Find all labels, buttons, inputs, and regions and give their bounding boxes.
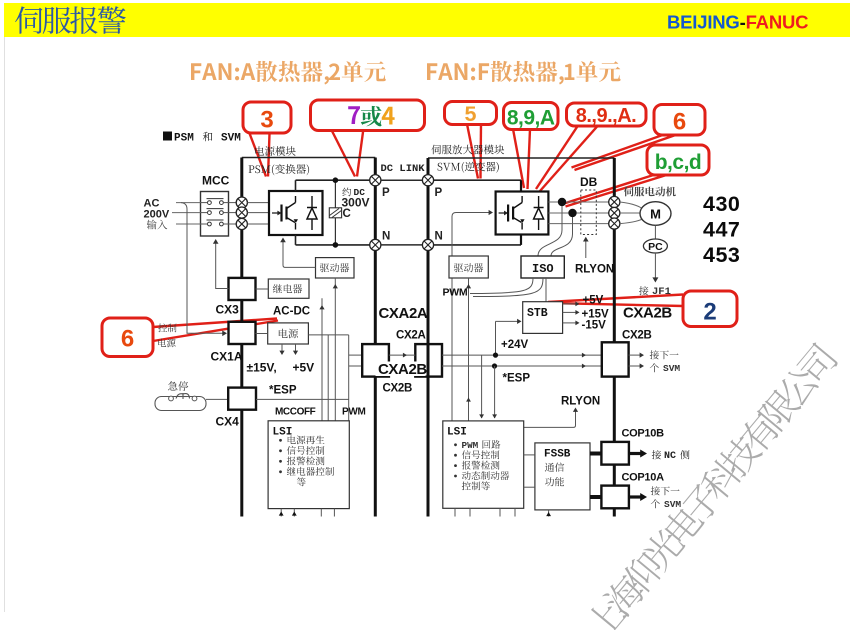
svg-text:±15V,: ±15V,: [247, 361, 277, 375]
svg-text:CX4: CX4: [216, 415, 240, 429]
svg-text:SVM: SVM: [663, 363, 680, 374]
svg-text:3: 3: [260, 107, 273, 134]
svg-text:DB: DB: [580, 175, 598, 189]
svg-text:FSSB: FSSB: [544, 449, 571, 461]
svg-text:CX2B: CX2B: [383, 383, 412, 395]
svg-text:*ESP: *ESP: [503, 373, 531, 385]
svg-text:447: 447: [703, 218, 740, 242]
svg-text:+5V: +5V: [583, 295, 604, 307]
svg-text:6: 6: [673, 109, 686, 136]
svg-text:2: 2: [703, 299, 716, 326]
svg-text:PWM: PWM: [342, 407, 366, 418]
svg-text:DC LINK: DC LINK: [381, 163, 426, 175]
svg-text:PSM: PSM: [174, 133, 194, 145]
svg-text:PWM: PWM: [462, 440, 479, 451]
svg-text:+24V: +24V: [501, 339, 529, 351]
svg-text:300V: 300V: [342, 196, 370, 210]
svg-text:CXA2A: CXA2A: [379, 305, 428, 322]
svg-text:PWM: PWM: [443, 287, 468, 299]
svg-text:430: 430: [703, 192, 740, 216]
svg-text:COP10B: COP10B: [622, 428, 665, 440]
svg-text:MCC: MCC: [202, 174, 230, 188]
svg-text:RLYON: RLYON: [561, 396, 600, 408]
svg-text:JF1: JF1: [652, 286, 671, 298]
svg-text:-15V: -15V: [582, 320, 607, 332]
svg-text:C: C: [343, 208, 351, 220]
svg-text:CX2A: CX2A: [396, 330, 425, 342]
svg-text:LSI: LSI: [447, 427, 467, 439]
svg-text:*ESP: *ESP: [269, 385, 297, 397]
svg-text:P: P: [382, 187, 390, 199]
svg-text:M: M: [650, 207, 661, 222]
svg-text:8.,9.,A.: 8.,9.,A.: [576, 105, 636, 127]
svg-text:PC: PC: [648, 241, 663, 253]
svg-text:SVM: SVM: [664, 499, 681, 510]
svg-text:CXA2B: CXA2B: [623, 305, 672, 322]
svg-text:P: P: [435, 187, 443, 199]
svg-text:N: N: [435, 231, 443, 243]
svg-text:SVM: SVM: [221, 133, 241, 145]
svg-text:6: 6: [121, 326, 134, 353]
svg-text:5: 5: [465, 102, 477, 126]
svg-text:MCCOFF: MCCOFF: [275, 407, 316, 418]
svg-text:b,c,d: b,c,d: [655, 151, 702, 174]
svg-text:COP10A: COP10A: [622, 472, 665, 484]
svg-text:STB: STB: [527, 307, 548, 320]
svg-text:453: 453: [703, 243, 740, 267]
svg-text:CXA2B: CXA2B: [378, 361, 427, 378]
svg-text:AC-DC: AC-DC: [273, 306, 310, 318]
svg-text:CX1A: CX1A: [211, 350, 243, 364]
svg-text:CX3: CX3: [216, 303, 240, 317]
svg-text:8,9,A: 8,9,A: [507, 107, 555, 130]
svg-text:CX2B: CX2B: [622, 330, 651, 342]
svg-text:+5V: +5V: [293, 361, 315, 375]
svg-text:RLYON: RLYON: [575, 264, 614, 276]
svg-text:200V: 200V: [144, 209, 170, 221]
svg-text:BEIJING-FANUC: BEIJING-FANUC: [667, 12, 808, 33]
svg-text:LSI: LSI: [273, 427, 293, 439]
svg-text:NC: NC: [664, 451, 676, 462]
svg-text:N: N: [382, 231, 390, 243]
svg-text:ISO: ISO: [532, 262, 554, 276]
